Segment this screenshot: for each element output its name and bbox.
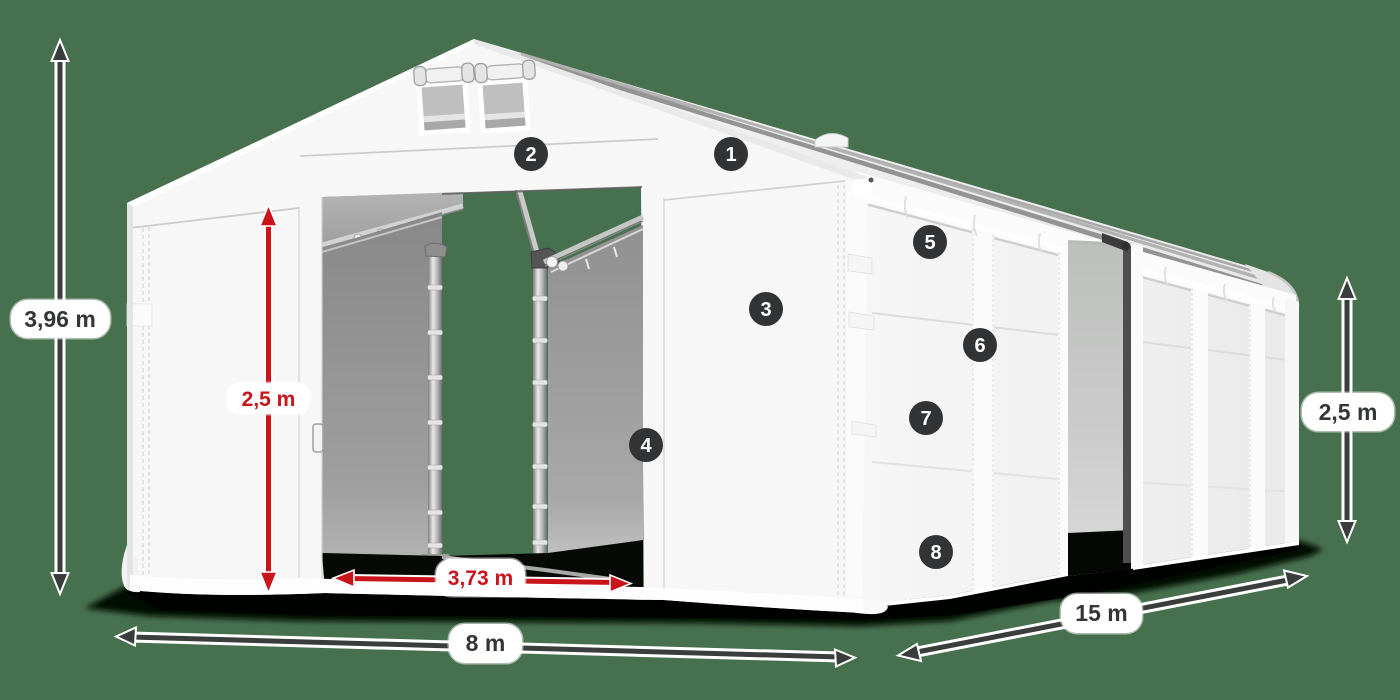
svg-text:15 m: 15 m — [1075, 600, 1127, 626]
svg-text:2,5 m: 2,5 m — [242, 388, 296, 411]
svg-text:5: 5 — [924, 232, 935, 254]
svg-text:2,5 m: 2,5 m — [1319, 399, 1378, 425]
svg-text:3,96 m: 3,96 m — [24, 306, 96, 332]
svg-text:2: 2 — [525, 144, 536, 166]
svg-text:8: 8 — [930, 542, 941, 564]
svg-text:1: 1 — [725, 144, 736, 166]
svg-text:4: 4 — [640, 435, 652, 457]
svg-text:8 m: 8 m — [466, 630, 506, 656]
svg-text:6: 6 — [974, 335, 985, 357]
svg-text:3: 3 — [760, 299, 771, 321]
svg-text:7: 7 — [920, 408, 931, 430]
svg-text:3,73 m: 3,73 m — [448, 567, 513, 590]
